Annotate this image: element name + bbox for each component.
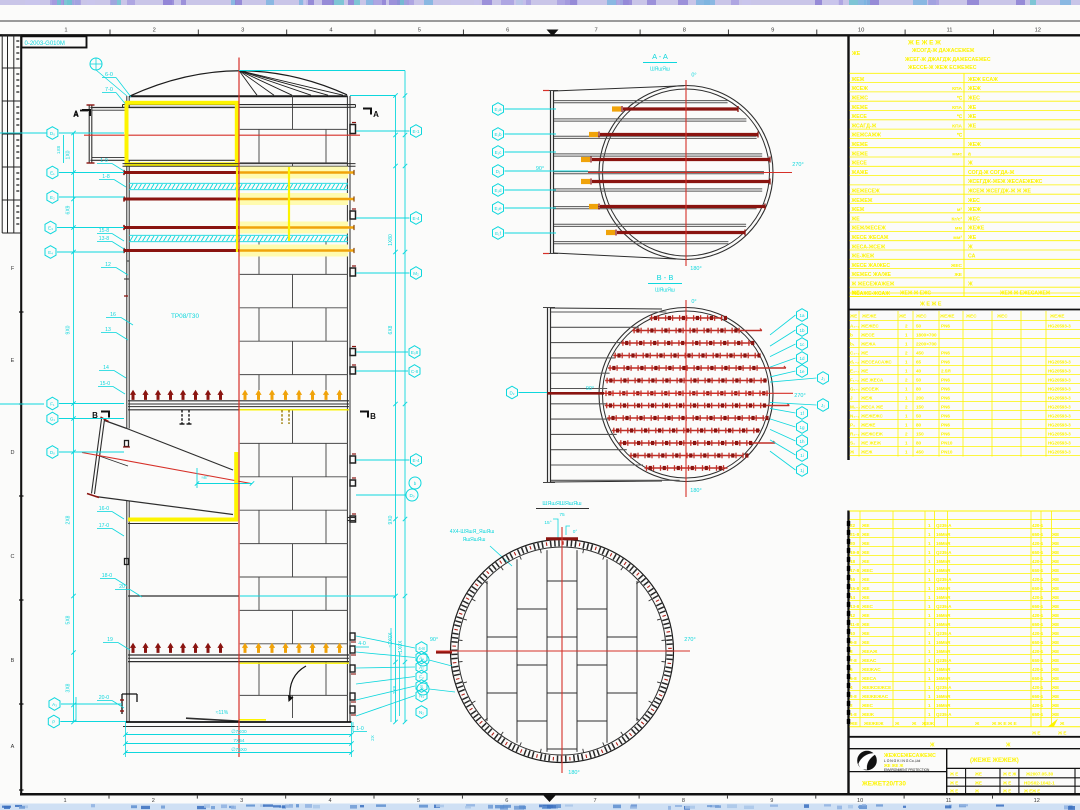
svg-text:15-8: 15-8 [850,586,860,591]
svg-text:ЖЕЖ Ж ЕЖЕСАЖЕЖ: ЖЕЖ Ж ЕЖЕСАЖЕЖ [999,291,1051,297]
svg-text:1: 1 [928,703,931,708]
svg-text:Q235-A: Q235-A [936,523,952,528]
svg-text:ЖЕ: ЖЕ [898,314,906,319]
svg-text:PN6: PN6 [941,423,950,428]
svg-text:PN6: PN6 [941,351,950,356]
svg-text:420-1: 420-1 [1032,667,1044,672]
svg-text:HG20593-3: HG20593-3 [1048,378,1071,383]
svg-text:1: 1 [905,441,908,446]
svg-text:650-1: 650-1 [1032,568,1044,573]
svg-text:16MnR: 16MnR [936,640,951,645]
svg-text:ЖСЕГ-Ж ДЖАГДЖ ДАЖЕСАЕЖЕС: ЖСЕГ-Ж ДЖАГДЖ ДАЖЕСАЕЖЕС [904,57,991,63]
svg-text:17-8: 17-8 [850,568,860,573]
svg-text:КПА: КПА [952,86,962,92]
svg-text:22: 22 [850,523,856,528]
svg-text:2: 2 [905,405,908,410]
svg-text:Ж Е Ж Е: Ж Е Ж Е [919,302,942,308]
svg-text:7X54: 7X54 [233,738,245,744]
svg-text:0°: 0° [573,529,578,535]
svg-text:650-1: 650-1 [1032,676,1044,681]
svg-text:ЖЕЖ Ж ЕЖС: ЖЕЖ Ж ЕЖС [899,291,931,297]
svg-text:ЖЕ: ЖЕ [1051,694,1059,699]
svg-text:420-1: 420-1 [1032,613,1044,618]
svg-text:ЖЕСЕ: ЖЕСЕ [851,161,868,167]
svg-text:ЖЕ-ЖЕЖ: ЖЕ-ЖЕЖ [851,254,875,260]
svg-text:1: 1 [928,712,931,717]
svg-text:J₁: J₁ [821,376,825,381]
svg-text:Ж: Ж [849,450,855,455]
svg-text:10: 10 [858,28,864,34]
svg-text:E: E [11,358,15,364]
svg-text:16MnR: 16MnR [936,568,951,573]
svg-text:11: 11 [946,798,952,804]
svg-text:ЖЕ: ЖЕ [953,272,962,278]
svg-text:D₀: D₀ [50,131,55,136]
svg-text:P: P [52,719,55,724]
svg-text:19-8: 19-8 [850,550,860,555]
svg-text:ЖЕ: ЖЕ [1051,577,1059,582]
svg-text:ЖЕ: ЖЕ [851,216,861,222]
svg-text:ЖСАГД-Ж: ЖСАГД-Ж [851,123,877,129]
svg-text:ЖЕ: ЖЕ [1051,676,1059,681]
svg-text:150: 150 [916,405,924,410]
svg-text:10: 10 [857,798,863,804]
svg-text:Q235-A: Q235-A [936,658,952,663]
svg-text:Dₒ: Dₒ [50,450,55,455]
svg-text:ЖЕ: ЖЕ [1051,568,1059,573]
svg-text:℃: ℃ [957,132,963,139]
svg-text:ШЯшЯш: ШЯшЯш [655,288,675,294]
svg-text:C₁₋₂: C₁₋₂ [850,351,860,356]
svg-text:20: 20 [850,541,856,546]
svg-text:270°: 270° [794,393,805,399]
svg-text:Ж: Ж [967,244,973,250]
svg-text:КПА: КПА [952,105,962,111]
svg-text:ЖЕЖ: ЖЕЖ [861,712,875,718]
svg-text:Ж: Ж [967,161,973,167]
svg-text:P₁: P₁ [850,423,855,428]
svg-text:1800×700: 1800×700 [916,333,937,338]
svg-text:A: A [373,110,379,119]
svg-text:ЖСЕГДЖ-ЖЕЖ ЖЕСАЕЖЕЖС: ЖСЕГДЖ-ЖЕЖ ЖЕСАЕЖЕЖС [967,179,1043,185]
svg-text:ЖЕ: ЖЕ [1051,559,1059,564]
svg-text:13-8: 13-8 [850,604,860,609]
svg-text:18: 18 [850,559,856,564]
svg-text:A - A: A - A [652,52,668,61]
svg-text:1: 1 [905,342,908,347]
svg-text:HG20593-3: HG20593-3 [1048,432,1071,437]
svg-text:PN10: PN10 [941,450,953,455]
svg-text:ЖЕС: ЖЕС [861,568,874,574]
svg-text:ЖЕ: ЖЕ [861,595,870,601]
svg-text:КПА: КПА [952,123,962,129]
svg-text:ЖСЕЖ: ЖСЕЖ [851,86,869,92]
svg-text:E₅8: E₅8 [411,350,419,355]
svg-text:ЖЕС: ЖЕС [996,314,1008,319]
svg-text:16MnR: 16MnR [936,649,951,654]
svg-text:M₂: M₂ [413,271,419,276]
svg-text:B - B: B - B [657,273,674,282]
svg-text:16MnR: 16MnR [936,586,951,591]
svg-text:1g: 1g [799,425,805,430]
svg-text:16MnR: 16MnR [936,694,951,699]
svg-text:ЖЕСЕАСАЖС: ЖЕСЕАСАЖС [860,360,892,365]
svg-text:5: 5 [417,798,420,804]
svg-text:E-4: E-4 [412,216,420,221]
svg-text:R₁: R₁ [421,658,426,663]
svg-text:ЖЕСЕ: ЖЕСЕ [860,333,875,338]
svg-text:1: 1 [928,586,931,591]
svg-text:ЖЕ: ЖЕ [1051,595,1059,600]
svg-text:Ж: Ж [911,721,917,727]
svg-text:ЖЕ: ЖЕ [861,613,870,619]
svg-text:2: 2 [905,324,908,329]
svg-text:ЖЕ: ЖЕ [860,351,868,356]
svg-text:J₂: J₂ [821,403,825,408]
svg-text:ЖЕ: ЖЕ [861,640,870,646]
svg-text:1: 1 [928,658,931,663]
svg-text:1: 1 [928,604,931,609]
svg-text:ЖЕСА-ЖСЕЖ: ЖЕСА-ЖСЕЖ [851,244,886,250]
svg-text:Ж ЖЕСЕЖАЖЕЖ: Ж ЖЕСЕЖАЖЕЖ [851,282,895,288]
svg-text:1-8: 1-8 [850,712,857,717]
svg-text:ЖЕ: ЖЕ [974,781,982,786]
svg-text:2: 2 [850,703,853,708]
svg-text:ЖЕСЕ ЖА/ЖЕС: ЖЕСЕ ЖА/ЖЕС [851,263,891,269]
svg-text:40: 40 [916,369,922,374]
svg-text:1a: 1a [799,313,805,318]
svg-text:F₁₋₂: F₁₋₂ [850,378,859,383]
svg-text:СА: СА [968,254,976,260]
svg-text:ЖЕ: ЖЕ [974,772,982,777]
svg-text:м³: м³ [957,207,963,213]
svg-text:420-1: 420-1 [1032,703,1044,708]
svg-text:PN6: PN6 [941,387,950,392]
svg-text:ЖЕЖЕ: ЖЕЖЕ [851,151,869,157]
svg-text:150: 150 [916,432,924,437]
svg-text:1: 1 [928,532,931,537]
svg-text:12: 12 [850,613,856,618]
svg-text:B: B [11,658,15,664]
svg-text:1: 1 [63,798,66,804]
svg-text:4-8: 4-8 [418,646,425,651]
svg-text:ЖЕ: ЖЕ [1051,550,1059,555]
svg-text:ЖЕ: ЖЕ [1051,685,1059,690]
svg-text:1: 1 [928,631,931,636]
svg-text:ЖЕС: ЖЕС [967,216,980,222]
svg-text:ЖАЖЕ: ЖАЖЕ [851,170,869,176]
svg-text:9X0: 9X0 [66,325,72,334]
svg-text:16MnR: 16MnR [936,667,951,672]
svg-text:Кг/с³: Кг/с³ [951,216,962,222]
svg-text:ЖЕЖЕ: ЖЕЖЕ [860,423,875,428]
svg-text:1: 1 [928,559,931,564]
svg-text:1e: 1e [799,369,805,374]
svg-text:ШЯшЯш: ШЯшЯш [650,67,670,73]
svg-text:ЖЕС: ЖЕС [967,198,980,204]
svg-text:≈1X0X: ≈1X0X [398,640,404,656]
svg-text:ЖЕАЖ: ЖЕАЖ [861,649,878,655]
svg-text:ЖЕ: ЖЕ [860,369,868,374]
svg-text:1: 1 [928,649,931,654]
svg-text:ЖЕЖ: ЖЕЖ [851,207,865,213]
svg-text:5-8: 5-8 [850,676,857,681]
svg-text:PN6: PN6 [941,378,950,383]
svg-text:16MnR: 16MnR [936,532,951,537]
svg-text:Ж Е: Ж Е [1031,731,1041,736]
svg-text:HG20593-3: HG20593-3 [1048,324,1071,329]
svg-text:E₄: E₄ [48,250,53,255]
svg-text:Q235-A: Q235-A [936,631,952,636]
svg-text:1: 1 [905,396,908,401]
svg-text:1c: 1c [800,342,806,347]
svg-text:E-1: E-1 [412,129,420,134]
svg-text:ЖЕ: ЖЕ [861,622,870,628]
svg-text:12: 12 [1034,798,1040,804]
svg-text:ЖЕ: ЖЕ [1051,631,1059,636]
svg-text:G₁: G₁ [50,416,56,421]
svg-text:ЖЕ ЖЕЖ: ЖЕ ЖЕЖ [860,441,882,446]
svg-text:3: 3 [241,28,244,34]
svg-text:ЖЕС: ЖЕС [915,314,927,319]
svg-text:Ж Е: Ж Е [1002,789,1011,794]
svg-text:Ж: Ж [929,743,935,749]
svg-text:7: 7 [594,798,597,804]
svg-text:8: 8 [682,798,685,804]
svg-text:ЖЕЖ: ЖЕЖ [967,86,981,92]
svg-text:TP08/T30: TP08/T30 [171,313,200,320]
svg-text:2X8: 2X8 [66,515,72,524]
svg-text:1: 1 [928,640,931,645]
svg-text:1: 1 [928,523,931,528]
svg-text:ЖЕ: ЖЕ [1051,622,1059,627]
svg-text:R₂: R₂ [421,687,426,692]
svg-text:ЖЕССЕ-Ж ЖЕЖ ЕСЖЕЖЕС: ЖЕССЕ-Ж ЖЕЖ ЕСЖЕЖЕС [907,65,977,71]
svg-text:ЖЕЖ: ЖЕЖ [921,721,935,727]
svg-text:ЖЕ: ЖЕ [1051,613,1059,618]
svg-text:3: 3 [240,798,243,804]
svg-text:2: 2 [905,432,908,437]
svg-text:650-1: 650-1 [1032,694,1044,699]
svg-text:E₁: E₁ [50,170,55,175]
svg-text:D₁: D₁ [496,169,501,174]
svg-text:10: 10 [850,631,856,636]
svg-text:16MnR: 16MnR [936,613,951,618]
svg-text:4-0: 4-0 [358,641,366,647]
svg-text:Ж: Ж [974,721,980,727]
svg-text:ЖЕ: ЖЕ [849,314,857,319]
svg-text:1: 1 [928,613,931,618]
svg-text:ЖЕ: ЖЕ [861,631,870,637]
svg-text:D: D [11,450,15,456]
svg-text:650-1: 650-1 [1032,586,1044,591]
svg-text:2: 2 [153,28,156,34]
svg-text:F₁: F₁ [50,401,55,406]
svg-text:E₁a: E₁a [494,107,502,112]
svg-text:HG20593-3: HG20593-3 [1048,450,1071,455]
svg-text:PN6: PN6 [941,360,950,365]
svg-text:Ж Е: Ж Е [1057,731,1067,736]
svg-text:1i: 1i [800,453,804,458]
svg-text:∅76X0: ∅76X0 [231,747,247,753]
svg-text:6X9: 6X9 [66,205,72,214]
svg-text:Ж Ж Е Ж Е: Ж Ж Е Ж Е [991,721,1018,727]
svg-text:0°: 0° [691,73,696,79]
svg-text:≈8°: ≈8° [201,475,208,481]
svg-text:1: 1 [928,676,931,681]
svg-text:ЖЕ: ЖЕ [861,586,870,592]
svg-text:b₁: b₁ [850,342,855,347]
svg-text:1b: 1b [799,328,805,333]
svg-text:1: 1 [928,622,931,627]
svg-text:ЖЕ: ЖЕ [1051,532,1059,537]
svg-text:ЖЕСЕ: ЖЕСЕ [851,114,868,120]
svg-text:1: 1 [928,694,931,699]
svg-text:9X0: 9X0 [388,515,394,524]
svg-text:PN6: PN6 [941,414,950,419]
svg-text:E₁d: E₁d [494,188,502,193]
svg-text:ЖЕЖЕЖС: ЖЕЖЕЖС [860,414,883,419]
svg-text:ЖЕ: ЖЕ [861,523,870,529]
svg-text:ЖЕЖСАЖЖ: ЖЕЖСАЖЖ [851,133,882,139]
svg-text:Q235-A: Q235-A [936,685,952,690]
svg-text:ЖЕЖСЕЖСЕ: ЖЕЖСЕЖСЕ [861,685,892,691]
svg-text:ЖЕЖАС: ЖЕЖАС [861,667,881,673]
svg-text:ЖЕЖЕС ЖА/ЖЕ: ЖЕЖЕС ЖА/ЖЕ [851,272,892,278]
svg-text:65: 65 [916,360,922,365]
svg-text:21-8: 21-8 [850,532,860,537]
svg-text:4X4-ШЯшЯ_ЯшЯш: 4X4-ШЯшЯ_ЯшЯш [450,529,494,535]
svg-text:ЖЕ: ЖЕ [1051,640,1059,645]
svg-text:ЖЕ: ЖЕ [1051,703,1059,708]
svg-text:℃: ℃ [957,113,963,120]
svg-text:1j: 1j [800,468,804,473]
svg-text:E₁e: E₁e [494,206,502,211]
svg-text:3-8: 3-8 [850,694,857,699]
svg-text:ШЯшЯШЯшЯш: ШЯшЯШЯшЯш [542,501,582,507]
svg-text:650-1: 650-1 [1032,640,1044,645]
svg-text:ЖЕЖЕС: ЖЕЖЕС [860,324,879,329]
svg-text:6X8: 6X8 [388,325,394,334]
svg-text:B: B [370,412,376,421]
svg-text:Ж Е: Ж Е [949,772,958,777]
svg-text:1: 1 [64,28,67,34]
svg-text:1: 1 [905,333,908,338]
svg-text:16MnR: 16MnR [936,559,951,564]
svg-text:Ж Е: Ж Е [949,789,958,794]
svg-text:ЖЕ: ЖЕ [861,550,870,556]
svg-text:8: 8 [850,649,853,654]
svg-text:4: 4 [850,685,853,690]
svg-text:ЖЕ: ЖЕ [1051,667,1059,672]
svg-text:420-1: 420-1 [1032,577,1044,582]
svg-text:16: 16 [850,577,856,582]
svg-text:HG20593-3: HG20593-3 [1048,369,1071,374]
svg-text:80: 80 [916,387,922,392]
svg-text:D₂: D₂ [510,390,515,395]
svg-text:50: 50 [916,378,922,383]
svg-text:E-4: E-4 [412,458,420,463]
svg-text:650-1: 650-1 [1032,712,1044,717]
svg-text:1: 1 [928,550,931,555]
svg-text:1: 1 [905,387,908,392]
svg-text:1X0: 1X0 [66,150,72,159]
svg-text:75: 75 [559,512,565,518]
svg-text:(ЖЕЖЕ ЖЕЖЕЖ): (ЖЕЖЕ ЖЕЖЕЖ) [970,758,1019,764]
svg-text:650-1: 650-1 [1032,550,1044,555]
svg-text:F₂: F₂ [419,674,424,679]
svg-text:420-1: 420-1 [1032,541,1044,546]
svg-text:Ж2007.05.30: Ж2007.05.30 [1025,772,1054,777]
svg-text:0°: 0° [691,299,696,305]
svg-text:A: A [73,110,79,119]
svg-text:Ж Е: Ж Е [1002,781,1011,786]
svg-text:270°: 270° [792,162,803,168]
svg-text:PN6: PN6 [941,324,950,329]
svg-text:ЖЕС: ЖЕС [861,604,874,610]
svg-text:ЖЕС: ЖЕС [965,314,977,319]
svg-text:J: J [850,396,853,401]
svg-text:16MnR: 16MnR [936,676,951,681]
svg-text:5: 5 [418,28,421,34]
svg-text:ЖЕЖЕ: ЖЕЖЕ [967,226,985,232]
svg-text:2: 2 [905,378,908,383]
svg-text:мм³: мм³ [953,235,962,241]
svg-text:650-1: 650-1 [1032,532,1044,537]
svg-text:Q235-A: Q235-A [936,604,952,609]
svg-text:6: 6 [850,667,853,672]
svg-text:2.5Я: 2.5Я [941,369,951,374]
svg-text:ЖЕ: ЖЕ [861,559,870,565]
svg-text:G₁₋₂: G₁₋₂ [850,387,860,392]
svg-text:1: 1 [928,568,931,573]
svg-text:ммс: ммс [952,152,962,157]
svg-text:HG20593-3: HG20593-3 [1048,414,1071,419]
svg-text:ЖЕЖ: ЖЕЖ [851,77,865,83]
svg-text:1: 1 [905,450,908,455]
svg-text:E₁f: E₁f [495,231,502,236]
svg-text:ЖЕС: ЖЕС [950,263,963,269]
svg-text:ЖЕ: ЖЕ [1051,586,1059,591]
svg-text:PN6: PN6 [941,396,950,401]
svg-text:50: 50 [916,414,922,419]
svg-text:E₃: E₃ [48,225,53,230]
svg-text:ЖСОГД-Ж ДАЖАСЕЖЕЖ: ЖСОГД-Ж ДАЖАСЕЖЕЖ [911,48,975,54]
svg-text:ЖЕ: ЖЕ [967,114,977,120]
svg-text:E₁c: E₁c [495,150,503,155]
svg-text:S₁: S₁ [850,441,855,446]
svg-text:420-1: 420-1 [1032,595,1044,600]
svg-text:d₁₋₂: d₁₋₂ [850,360,859,365]
svg-text:ЖЕ ЖЕСА: ЖЕ ЖЕСА [860,378,884,383]
svg-text:Q235-A: Q235-A [936,712,952,717]
svg-text:Ж ЕЖ Е: Ж ЕЖ Е [1023,789,1040,794]
svg-text:0-2003-G010M: 0-2003-G010M [25,41,65,47]
svg-text:HG20593-3: HG20593-3 [1048,387,1071,392]
svg-text:ЖЕСА: ЖЕСА [861,676,877,682]
svg-text:ЖЕЖС: ЖЕЖС [851,96,869,102]
svg-text:HG20593-3: HG20593-3 [1048,405,1071,410]
svg-text:1: 1 [928,595,931,600]
svg-text:ЖЕ: ЖЕ [967,235,977,241]
svg-text:180°: 180° [690,488,701,494]
svg-text:16MnR: 16MnR [936,541,951,546]
svg-text:ЖЕС: ЖЕС [861,703,874,709]
svg-text:1: 1 [928,667,931,672]
svg-text:1: 1 [928,685,931,690]
svg-text:A₁₋₂: A₁₋₂ [850,324,860,329]
svg-text:1: 1 [905,423,908,428]
